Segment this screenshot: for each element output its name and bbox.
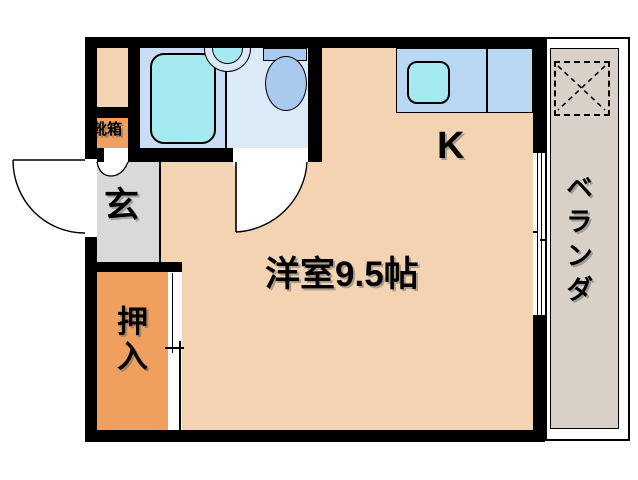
kitchen-label: K	[437, 127, 464, 165]
shoe-box-door-opening	[104, 148, 128, 166]
bathtub	[150, 53, 216, 144]
shoe-cabinet-divider-wall	[97, 107, 128, 118]
closet-sliding-door-tick	[165, 347, 184, 349]
entrance-edge-line	[159, 162, 161, 262]
bath-toilet-divider-line	[225, 70, 227, 150]
wall-shoe-bath	[128, 37, 140, 162]
window-center-tick-left	[533, 231, 538, 233]
window-opening	[533, 153, 545, 315]
bathroom-door-opening	[233, 148, 308, 166]
window-pane-line-right	[541, 153, 543, 315]
wall-bottom	[85, 430, 545, 442]
entrance-door-arc	[13, 160, 85, 233]
equipment-pad-dashed	[554, 61, 610, 116]
wall-entrance-bottom	[85, 262, 182, 272]
entrance-door-swing	[13, 160, 85, 233]
wall-toilet-right	[308, 37, 322, 162]
veranda-label: ベランダ	[563, 173, 590, 309]
shoe-box-label: 靴箱	[92, 122, 122, 137]
closet-sliding-door-line-lower	[179, 341, 181, 430]
main-room-label: 洋室9.5帖	[265, 257, 419, 292]
floor-plan: 洋室9.5帖 K 玄 押入 靴箱 ベランダ	[0, 0, 638, 480]
shoe-upper-cabinet	[97, 48, 128, 107]
entrance-door-opening	[85, 159, 97, 237]
kitchen-counter-divider	[486, 48, 488, 113]
window-pane-line-left	[537, 153, 539, 315]
closet-sliding-door-line-upper	[172, 273, 174, 353]
entrance-label: 玄	[104, 188, 139, 223]
kitchen-sink	[407, 61, 450, 104]
wall-left	[85, 37, 97, 442]
toilet-bowl	[265, 56, 307, 111]
closet-label: 押入	[114, 305, 145, 375]
